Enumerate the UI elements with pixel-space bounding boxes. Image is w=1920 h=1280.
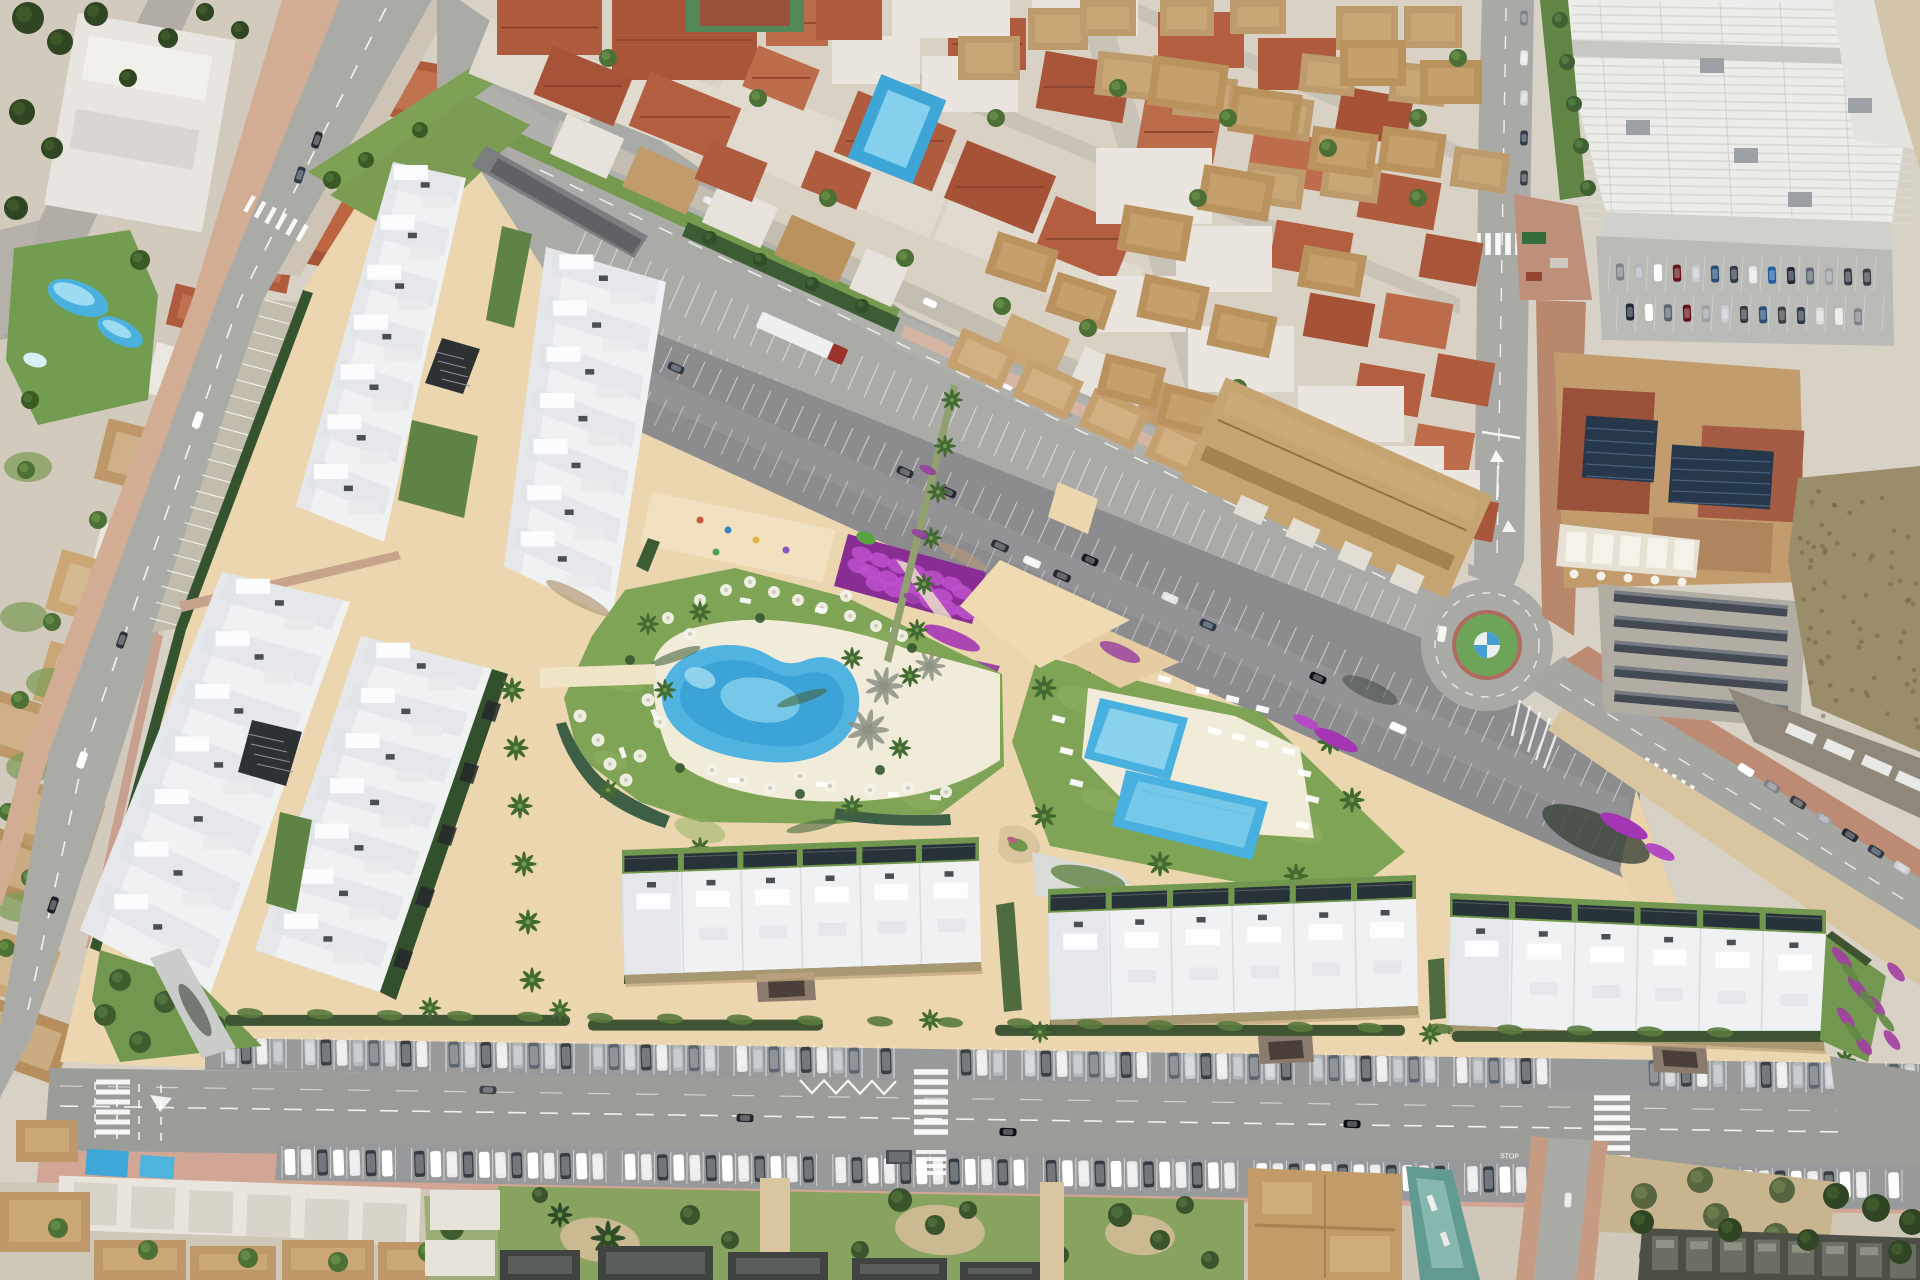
svg-text:STOP: STOP: [1500, 1153, 1519, 1161]
